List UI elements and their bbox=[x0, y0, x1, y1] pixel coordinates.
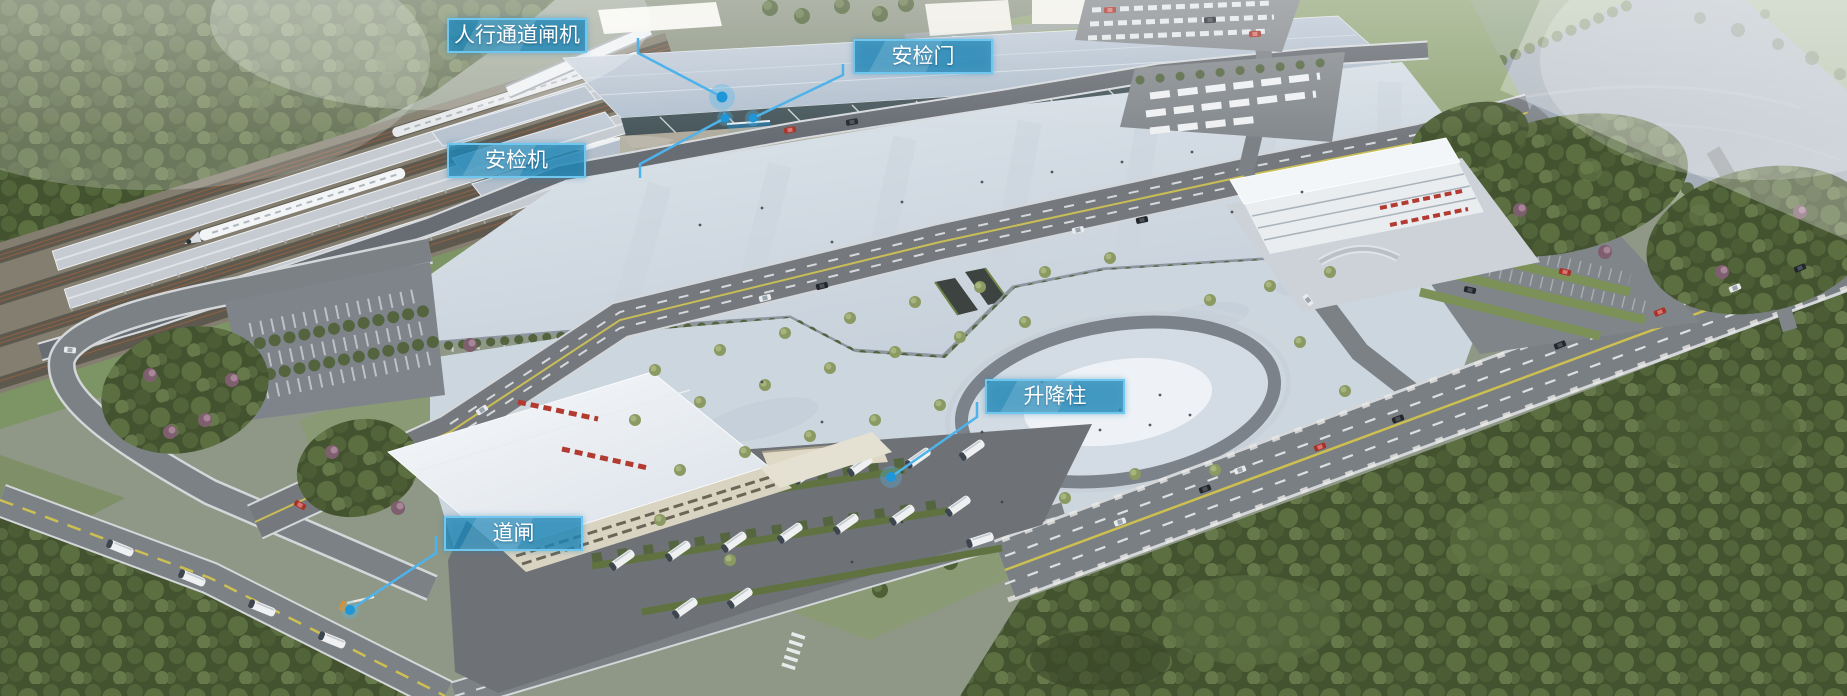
callout-label: 安检机 bbox=[485, 150, 548, 171]
callout-label: 升降柱 bbox=[1024, 386, 1087, 407]
callout-barrier-gate[interactable]: 道闸 bbox=[444, 516, 583, 551]
callout-label: 道闸 bbox=[493, 523, 535, 544]
callout-security-door[interactable]: 安检门 bbox=[853, 39, 993, 74]
station-aerial-scene bbox=[0, 0, 1847, 696]
callout-label: 安检门 bbox=[892, 46, 955, 67]
callout-security-scanner[interactable]: 安检机 bbox=[447, 143, 586, 178]
smart-station-aerial-render: 人行通道闸机 安检门 安检机 升降柱 道闸 bbox=[0, 0, 1847, 696]
marker-dot-security-scanner[interactable] bbox=[721, 114, 730, 123]
callout-label: 人行通道闸机 bbox=[454, 25, 580, 46]
callout-lifting-bollard[interactable]: 升降柱 bbox=[985, 379, 1125, 414]
marker-dot-security-door[interactable] bbox=[749, 114, 758, 123]
callout-pedestrian-channel-gate[interactable]: 人行通道闸机 bbox=[447, 18, 587, 53]
marker-dot-barrier-gate[interactable] bbox=[345, 605, 355, 615]
marker-dot-pedestrian-channel-gate[interactable] bbox=[717, 92, 728, 103]
marker-dot-lifting-bollard[interactable] bbox=[886, 472, 896, 482]
